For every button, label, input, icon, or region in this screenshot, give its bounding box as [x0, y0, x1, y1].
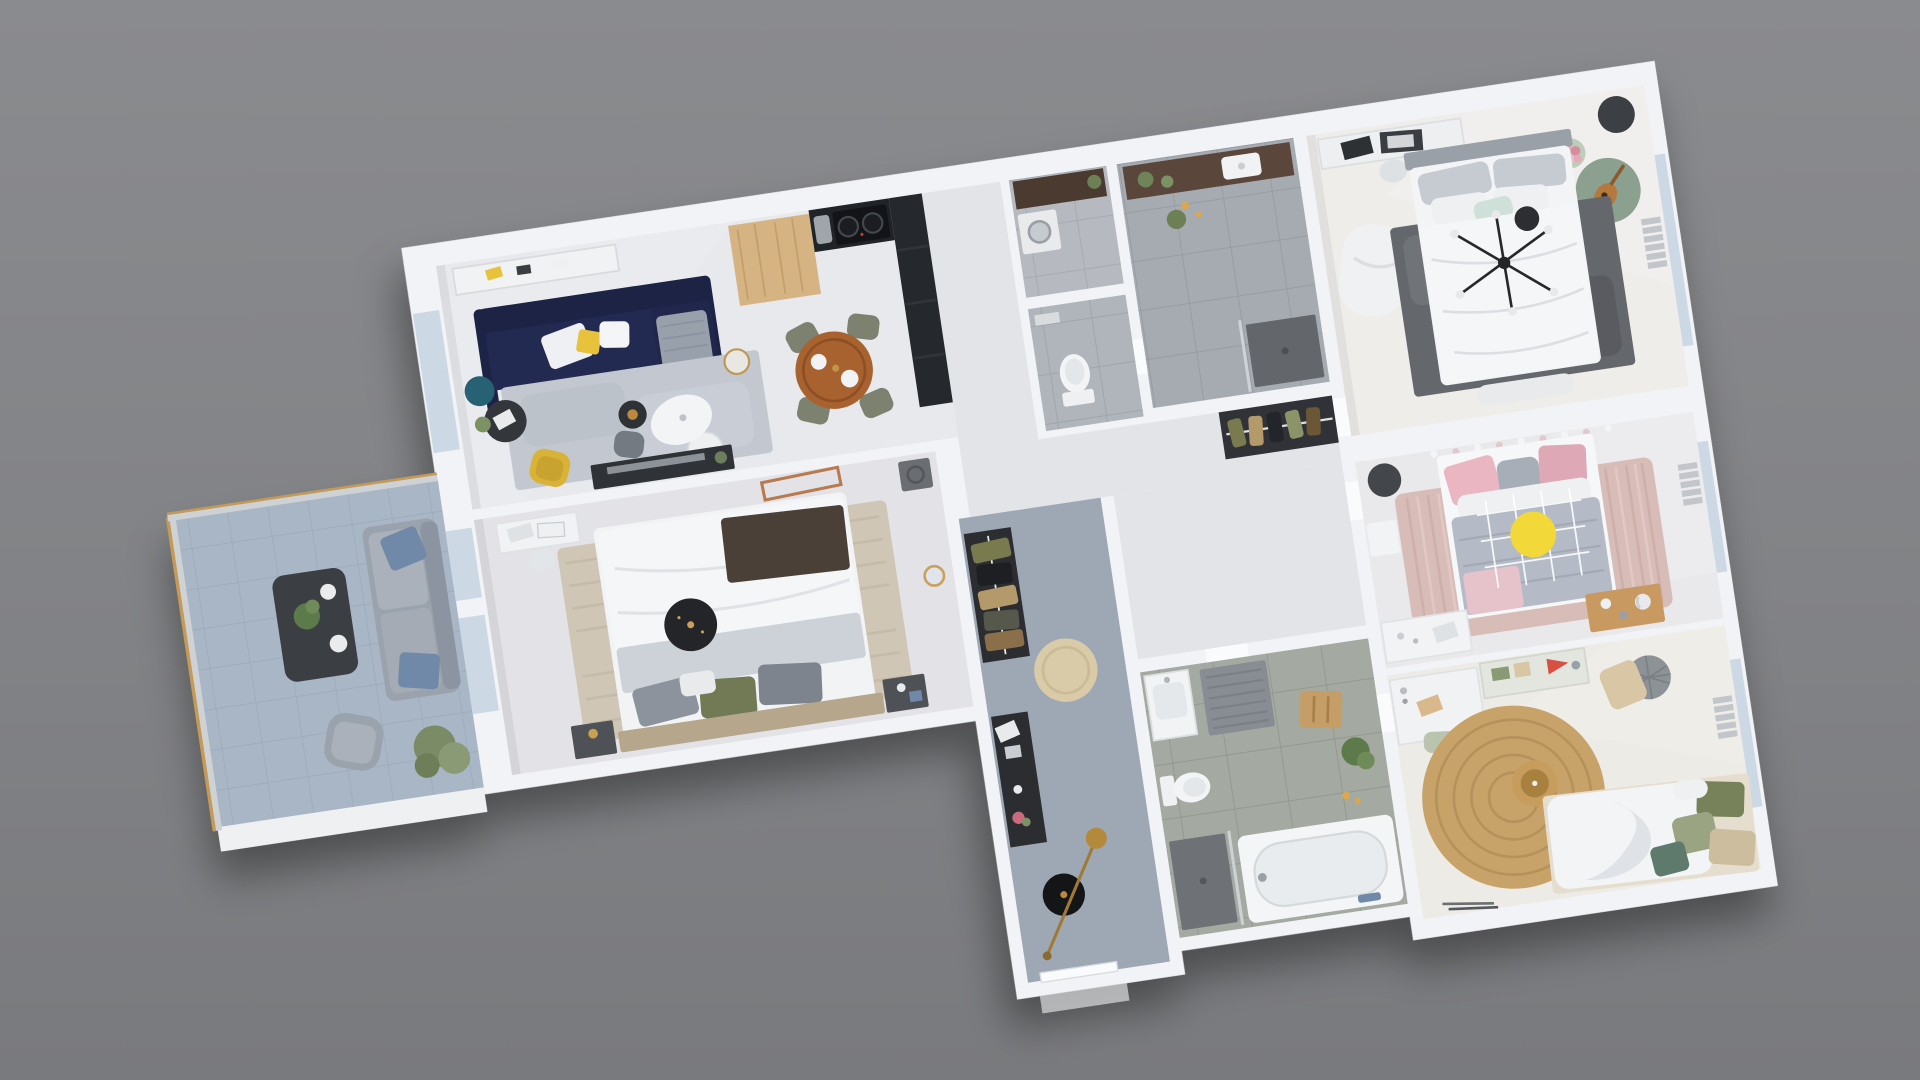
nightstand-left [571, 720, 618, 759]
gray-pouf [613, 430, 646, 460]
wood-stool [1299, 690, 1342, 728]
clothes-5 [1306, 407, 1321, 436]
blue-cushion-2 [398, 652, 441, 690]
wardrobe-clothes-4 [983, 609, 1020, 631]
pillow-b2-dark [758, 662, 823, 705]
washing-machine [1017, 209, 1061, 255]
balcony [165, 472, 487, 852]
white-cushion-2 [599, 321, 629, 348]
pink-bed [1436, 433, 1617, 620]
yellow-cushion [576, 329, 602, 355]
picture-frame-2 [1004, 745, 1021, 760]
clothes-2 [1248, 415, 1264, 446]
pillow-beige [1708, 828, 1756, 866]
gold-wall-mirror [923, 565, 945, 587]
floor-hall-block [1114, 462, 1366, 660]
wardrobe-clothes-2 [976, 562, 1013, 586]
vanity-basin [1144, 670, 1197, 741]
nightstand-right [882, 674, 929, 713]
bedroom2-bed [588, 490, 886, 752]
wall-bench [1366, 519, 1401, 556]
brown-throw [721, 505, 851, 584]
speaker [898, 457, 934, 491]
outdoor-coffee-table [271, 566, 360, 683]
pink-blanket [1462, 565, 1524, 615]
floor-plan-scene [0, 0, 1920, 1080]
